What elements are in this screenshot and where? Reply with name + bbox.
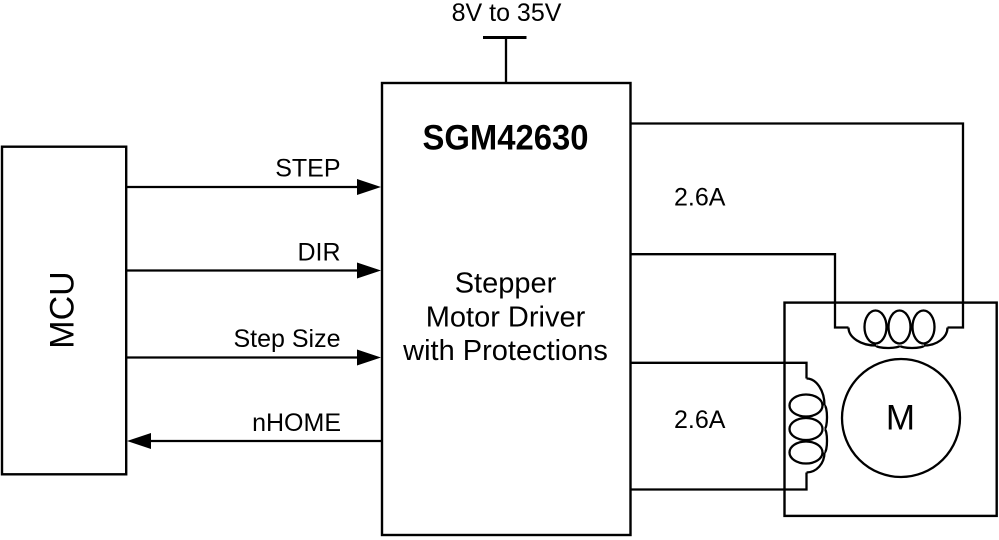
svg-text:SGM42630: SGM42630 (423, 119, 589, 158)
svg-text:Step Size: Step Size (233, 325, 340, 353)
svg-text:STEP: STEP (275, 155, 340, 183)
svg-text:nHOME: nHOME (252, 409, 341, 437)
svg-text:Motor Driver: Motor Driver (426, 301, 586, 333)
svg-text:MCU: MCU (44, 271, 82, 348)
svg-text:8V to 35V: 8V to 35V (452, 0, 562, 27)
svg-text:Stepper: Stepper (455, 267, 557, 299)
svg-text:M: M (886, 399, 915, 438)
svg-text:2.6A: 2.6A (674, 184, 726, 212)
svg-text:with Protections: with Protections (402, 335, 608, 367)
svg-text:2.6A: 2.6A (674, 406, 726, 434)
svg-text:DIR: DIR (297, 238, 340, 266)
